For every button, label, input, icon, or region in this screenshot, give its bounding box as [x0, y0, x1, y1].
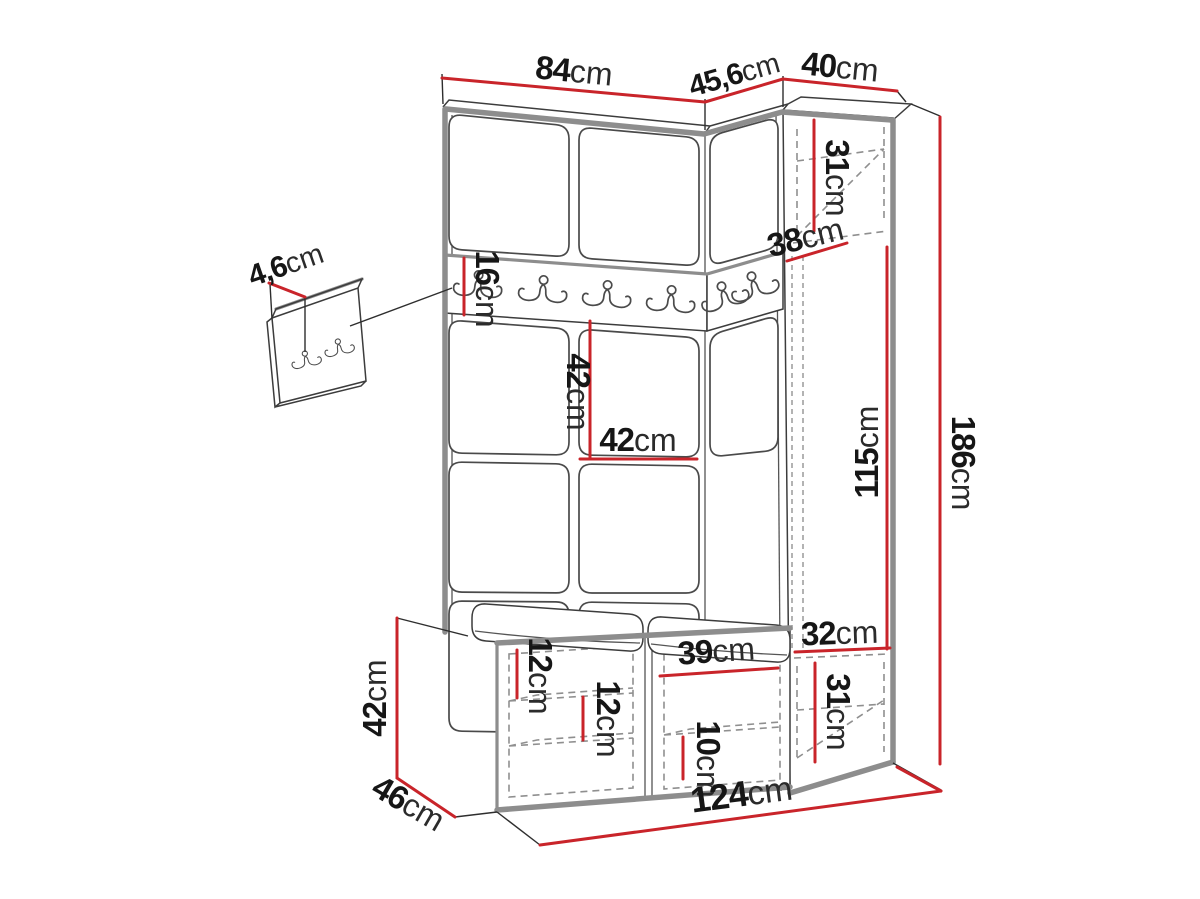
ext-line [911, 104, 940, 116]
dim-label-panel-height: 42cm [560, 353, 597, 430]
dim-label-bench-depth: 46cm [366, 768, 452, 839]
ext-line [897, 91, 906, 102]
pointer-line [350, 288, 452, 326]
dim-label-bench-shelf-spacing: 12cm [590, 680, 627, 757]
dim-label-panel-width: 42cm [599, 421, 676, 458]
dim-label-hook-rail-height: 16cm [469, 250, 506, 327]
wall-panel [710, 318, 778, 456]
wall-hook-panel [267, 279, 452, 407]
wall-panel [449, 115, 569, 256]
wall-panel [579, 128, 699, 265]
dim-label-bench-right-width: 39cm [676, 629, 756, 671]
ext-line [497, 812, 540, 845]
ext-line [270, 284, 272, 319]
ext-line [455, 812, 497, 817]
dim-label-total-height: 186cm [945, 416, 982, 511]
dim-label-bench-shelf-offset: 12cm [522, 637, 559, 714]
wall-panel [449, 321, 569, 455]
dim-label-wardrobe-top-compartment: 31cm [819, 139, 856, 216]
dim-label-wardrobe-bottom-compartment: 31cm [820, 673, 857, 750]
diagram-canvas: 84cm 45,6cm 40cm 31cm 38cm 115cm 186cm 1… [0, 0, 1200, 899]
hallway-set-dimension-diagram: 84cm 45,6cm 40cm 31cm 38cm 115cm 186cm 1… [0, 0, 1200, 899]
dim-label-small-panel-thickness: 4,6cm [244, 237, 328, 293]
dim-label-top-width-corner: 45,6cm [685, 46, 784, 103]
dim-label-top-width-right: 40cm [800, 44, 881, 88]
dim-label-wardrobe-door-height: 115cm [848, 406, 885, 499]
dim-label-top-width-left: 84cm [534, 48, 615, 92]
wall-panel [579, 464, 699, 593]
dim-line-186-foot [897, 767, 941, 791]
dim-label-bench-height: 42cm [356, 659, 393, 736]
dim-label-wardrobe-bottom-shelf: 32cm [800, 613, 879, 653]
wall-panel [449, 462, 569, 593]
